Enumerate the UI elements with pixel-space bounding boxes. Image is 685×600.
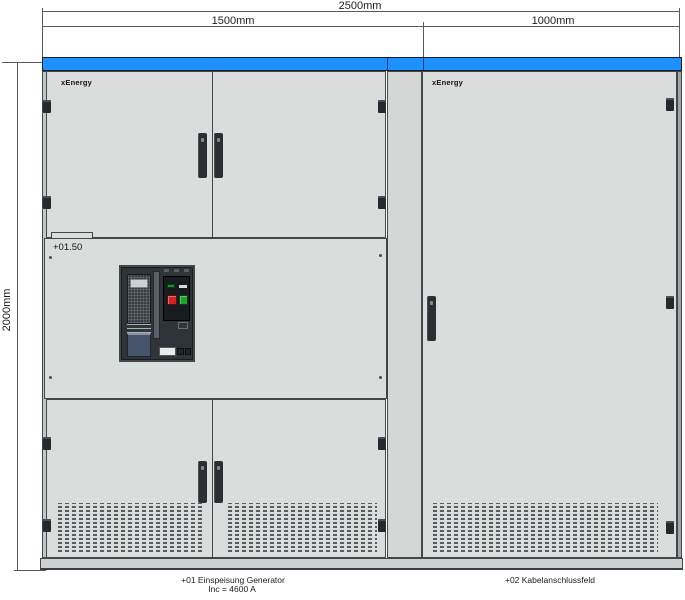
hinge xyxy=(378,437,386,450)
right-cabinet-caption: +02 Kabelanschlussfeld xyxy=(505,575,595,585)
hinge xyxy=(378,100,386,113)
hinge xyxy=(43,196,51,209)
breaker-rating-label xyxy=(130,279,148,288)
corner-post xyxy=(387,71,422,558)
extension-line-right xyxy=(679,8,680,58)
hinge xyxy=(43,100,51,113)
keyhole xyxy=(430,301,433,305)
hinge xyxy=(43,519,51,532)
dimension-line-height xyxy=(17,62,18,570)
breaker-bottom-button xyxy=(185,348,191,355)
door-handle xyxy=(198,133,207,178)
breaker-terminal xyxy=(184,269,189,272)
hinge xyxy=(666,98,674,111)
hinge xyxy=(43,437,51,450)
extension-line-middle xyxy=(423,22,424,58)
right-cabinet-side-panel xyxy=(677,71,682,558)
breaker-terminal xyxy=(174,269,179,272)
screw xyxy=(379,376,382,379)
dim-label-height: 2000mm xyxy=(1,289,13,332)
door-handle xyxy=(198,461,207,503)
vent-grille xyxy=(58,503,203,552)
hinge xyxy=(378,196,386,209)
vent-grille xyxy=(228,503,377,552)
extension-line-left xyxy=(42,8,43,58)
door-handle xyxy=(214,133,223,178)
hinge xyxy=(666,296,674,309)
plinth-base xyxy=(40,558,683,570)
canopy-divider xyxy=(387,58,388,70)
left-cabinet-top-right-door xyxy=(212,71,386,238)
breaker-nameplate xyxy=(159,347,176,356)
breaker-control-panel xyxy=(163,276,190,321)
screw xyxy=(49,256,52,259)
door-handle xyxy=(214,461,223,503)
dimension-line-total xyxy=(42,11,680,12)
hinge xyxy=(666,521,674,534)
breaker-side-rail xyxy=(153,271,160,339)
extension-line-bottom-height xyxy=(14,570,46,571)
keyhole xyxy=(217,138,220,142)
dimension-line-sections xyxy=(42,26,680,27)
keyhole xyxy=(217,466,220,470)
drawing-sheet: 2500mm 1500mm 1000mm 2000mm xEnergy +01.… xyxy=(0,0,685,600)
keyhole xyxy=(201,138,204,142)
left-cabinet-caption-line2: Inc = 4600 A xyxy=(208,584,256,594)
left-cabinet-middle-panel: +01.50 xyxy=(44,238,387,399)
breaker-off-button xyxy=(167,295,177,305)
breaker-cradle-rails xyxy=(127,324,151,333)
breaker-ready-indicator xyxy=(167,284,175,288)
door-handle xyxy=(427,296,436,341)
section-height-label: +01.50 xyxy=(53,242,82,253)
hinge xyxy=(378,519,386,532)
keyhole xyxy=(201,466,204,470)
breaker-terminal xyxy=(164,269,169,272)
canopy-trim xyxy=(42,57,682,71)
right-cabinet-door: xEnergy xyxy=(422,71,677,558)
breaker-charged-indicator xyxy=(179,285,187,288)
canopy-divider xyxy=(423,58,424,70)
breaker-racking-unit xyxy=(127,333,151,357)
extension-line-top-height xyxy=(2,62,42,63)
breaker-aux-port xyxy=(178,322,188,329)
left-cabinet-top-left-door: xEnergy xyxy=(46,71,213,238)
screw xyxy=(49,376,52,379)
brand-label: xEnergy xyxy=(432,78,463,87)
breaker-on-button xyxy=(179,295,188,305)
circuit-breaker xyxy=(119,265,195,362)
vent-grille xyxy=(433,503,658,552)
brand-label: xEnergy xyxy=(61,78,92,87)
screw xyxy=(379,254,382,257)
breaker-bottom-button xyxy=(177,348,184,355)
